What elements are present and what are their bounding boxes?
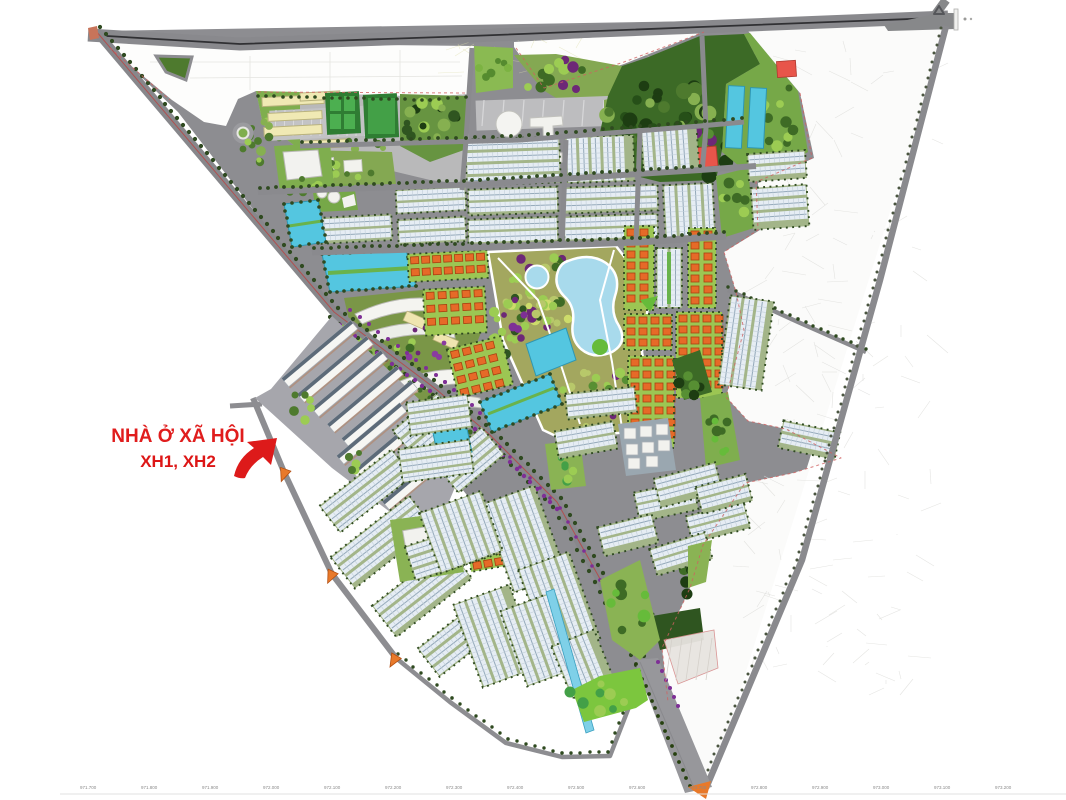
svg-text:973.100: 973.100: [934, 785, 951, 790]
svg-text:972.700: 972.700: [690, 785, 707, 790]
svg-text:972.300: 972.300: [446, 785, 463, 790]
svg-text:973.000: 973.000: [873, 785, 890, 790]
svg-text:971.800: 971.800: [141, 785, 158, 790]
svg-text:972.900: 972.900: [812, 785, 829, 790]
svg-text:972.200: 972.200: [385, 785, 402, 790]
svg-text:972.500: 972.500: [568, 785, 585, 790]
svg-text:972.100: 972.100: [324, 785, 341, 790]
svg-text:972.400: 972.400: [507, 785, 524, 790]
svg-text:XH1, XH2: XH1, XH2: [140, 452, 216, 471]
svg-text:NHÀ Ở XÃ HỘI: NHÀ Ở XÃ HỘI: [111, 425, 244, 447]
svg-text:972.000: 972.000: [263, 785, 280, 790]
svg-text:973.200: 973.200: [995, 785, 1012, 790]
svg-text:971.900: 971.900: [202, 785, 219, 790]
svg-text:972.600: 972.600: [629, 785, 646, 790]
svg-text:972.800: 972.800: [751, 785, 768, 790]
svg-text:971.700: 971.700: [80, 785, 97, 790]
